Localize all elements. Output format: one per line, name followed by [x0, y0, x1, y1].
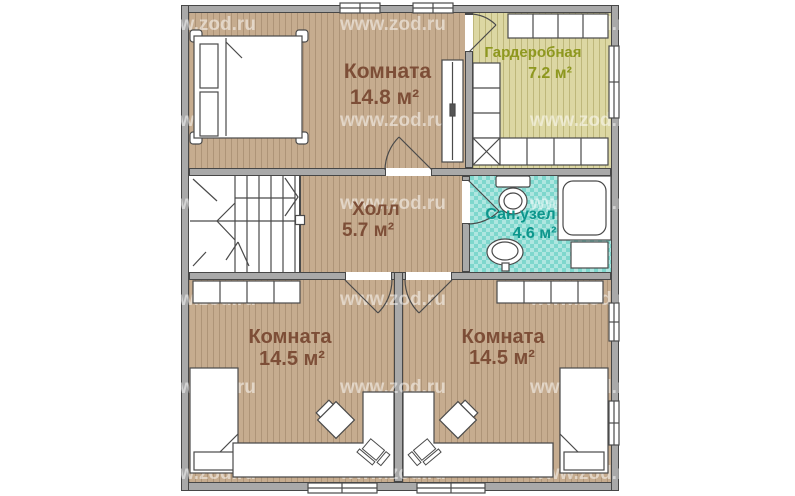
chair — [313, 397, 354, 438]
room-bottom-right-area: 14.5 м² — [424, 348, 580, 369]
bathroom-name: Сан.узел — [468, 207, 573, 224]
wardrobe-name: Гардеробная — [468, 45, 598, 61]
room-bottom-right-name: Комната — [425, 327, 581, 348]
wardrobe-area: 7.2 м² — [490, 66, 610, 83]
chair — [440, 397, 481, 438]
double-bed — [190, 30, 308, 144]
sink — [487, 239, 523, 271]
wardrobe-shelves — [473, 14, 608, 165]
shelf — [193, 281, 300, 303]
hall-area: 5.7 м² — [322, 221, 414, 241]
desk — [233, 392, 394, 477]
washing-machine — [571, 242, 608, 268]
floor-plan: www.zod.ruwww.zod.ruwww.zod.ruwww.zod.ru… — [0, 0, 795, 496]
single-bed — [190, 368, 238, 473]
room-top-area: 14.8 м² — [297, 87, 472, 109]
stairs — [190, 176, 305, 272]
bathroom-area: 4.6 м² — [482, 226, 587, 243]
single-bed — [560, 368, 608, 473]
shelf — [497, 281, 603, 303]
room-top-name: Комната — [300, 61, 475, 83]
room-bottom-left-area: 14.5 м² — [214, 349, 370, 370]
hall-name: Холл — [330, 200, 422, 220]
room-bottom-left-name: Комната — [212, 327, 368, 348]
